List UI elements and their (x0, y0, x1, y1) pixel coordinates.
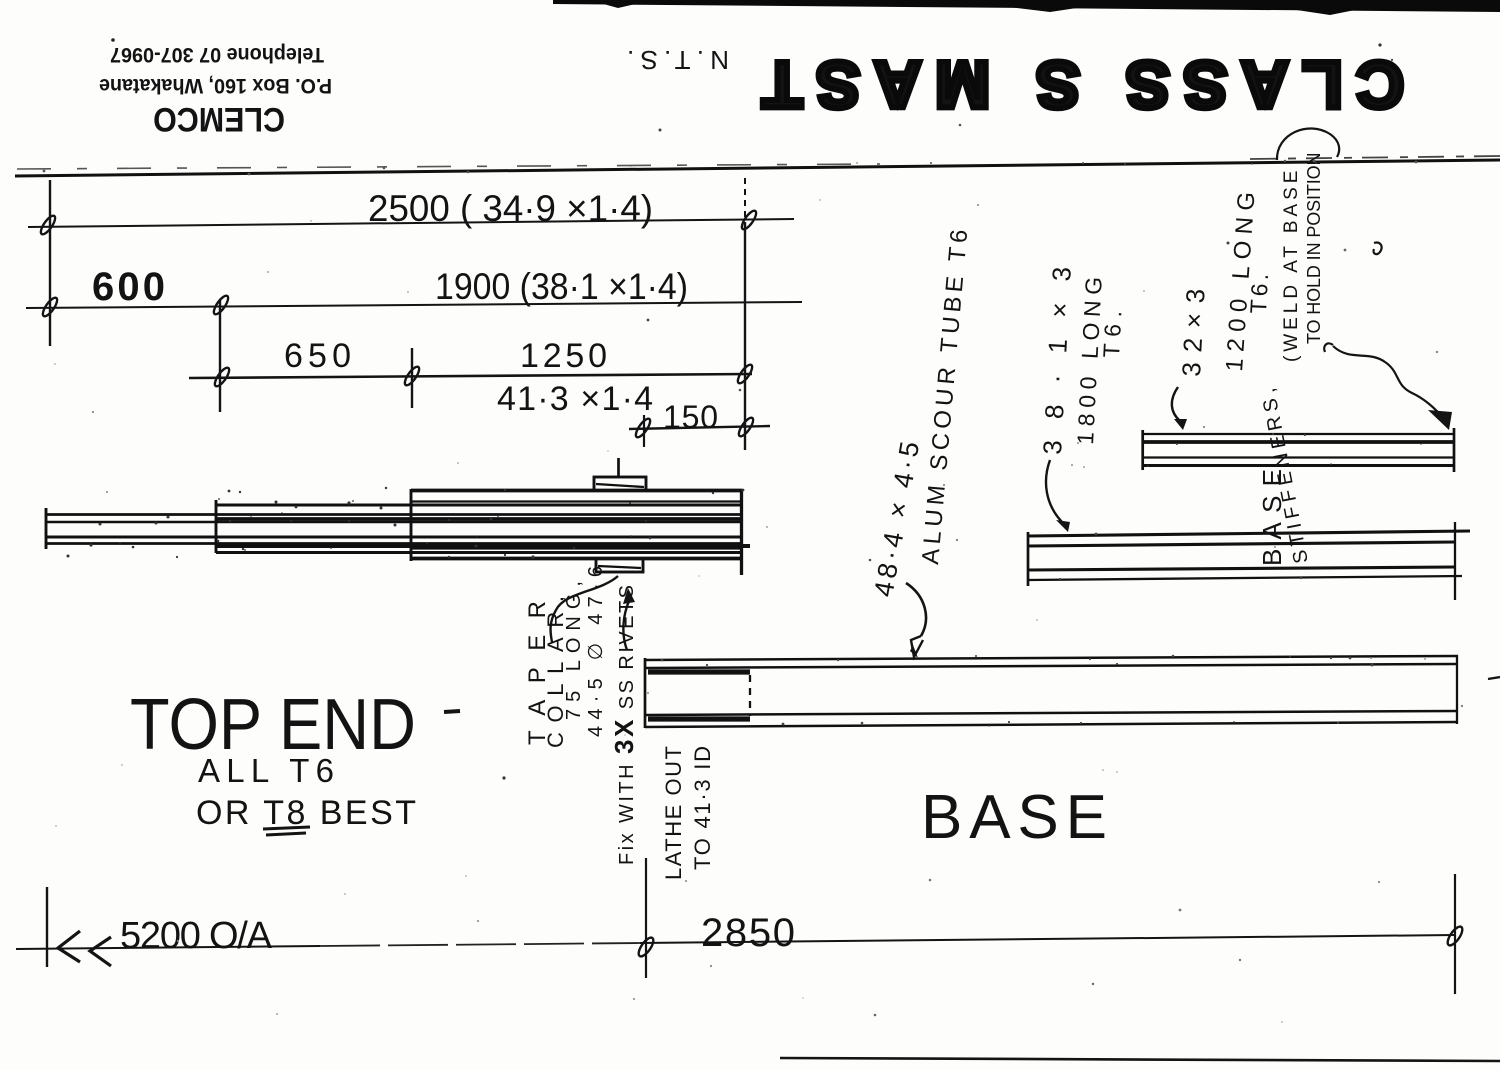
svg-text:44·5 ∅ 47·6: 44·5 ∅ 47·6 (585, 565, 607, 737)
svg-text:38·1×3: 38·1×3 (1037, 264, 1077, 455)
svg-text:600: 600 (92, 265, 165, 309)
svg-text:(WELD AT BASE: (WELD AT BASE (1281, 170, 1302, 362)
svg-text:Fix WITH 3X SS RIVETS: Fix WITH 3X SS RIVETS (609, 585, 639, 865)
svg-text:LATHE OUT: LATHE OUT (661, 745, 686, 880)
svg-text:1250: 1250 (520, 337, 607, 375)
svg-text:5200 O/A: 5200 O/A (120, 915, 273, 957)
svg-text:2850: 2850 (701, 911, 795, 955)
svg-text:1900 (38·1 ×1·4): 1900 (38·1 ×1·4) (435, 266, 688, 307)
svg-text:CLASS S MAST: CLASS S MAST (762, 48, 1404, 122)
svg-text:BASE: BASE (921, 783, 1107, 852)
svg-text:TO HOLD IN POSITION: TO HOLD IN POSITION (1304, 152, 1324, 344)
svg-text:Telephone 07 307-0967: Telephone 07 307-0967 (110, 43, 324, 66)
svg-text:ALUM SCOUR TUBE T6: ALUM SCOUR TUBE T6 (917, 228, 973, 565)
svg-text:75 LONG,: 75 LONG, (563, 580, 585, 720)
svg-text:32×3: 32×3 (1176, 286, 1211, 377)
svg-text:T6.: T6. (1098, 308, 1127, 358)
svg-text:N.T.S.: N.T.S. (627, 45, 729, 75)
svg-text:150: 150 (663, 399, 718, 435)
svg-text:41·3 ×1·4: 41·3 ×1·4 (497, 380, 653, 418)
svg-text:1800 LONG: 1800 LONG (1072, 274, 1107, 445)
svg-text:TO 41·3 ID: TO 41·3 ID (690, 745, 715, 870)
svg-text:2500 ( 34·9 ×1·4): 2500 ( 34·9 ×1·4) (368, 188, 653, 229)
svg-text:TOP END: TOP END (130, 685, 416, 765)
svg-text:650: 650 (284, 337, 351, 375)
svg-text:T6.: T6. (1245, 271, 1273, 314)
svg-text:48·4 × 4·5: 48·4 × 4·5 (868, 439, 925, 599)
svg-text:P.O. Box 160, Whakatane: P.O. Box 160, Whakatane (99, 74, 332, 97)
svg-text:CLEMCO: CLEMCO (153, 100, 285, 138)
